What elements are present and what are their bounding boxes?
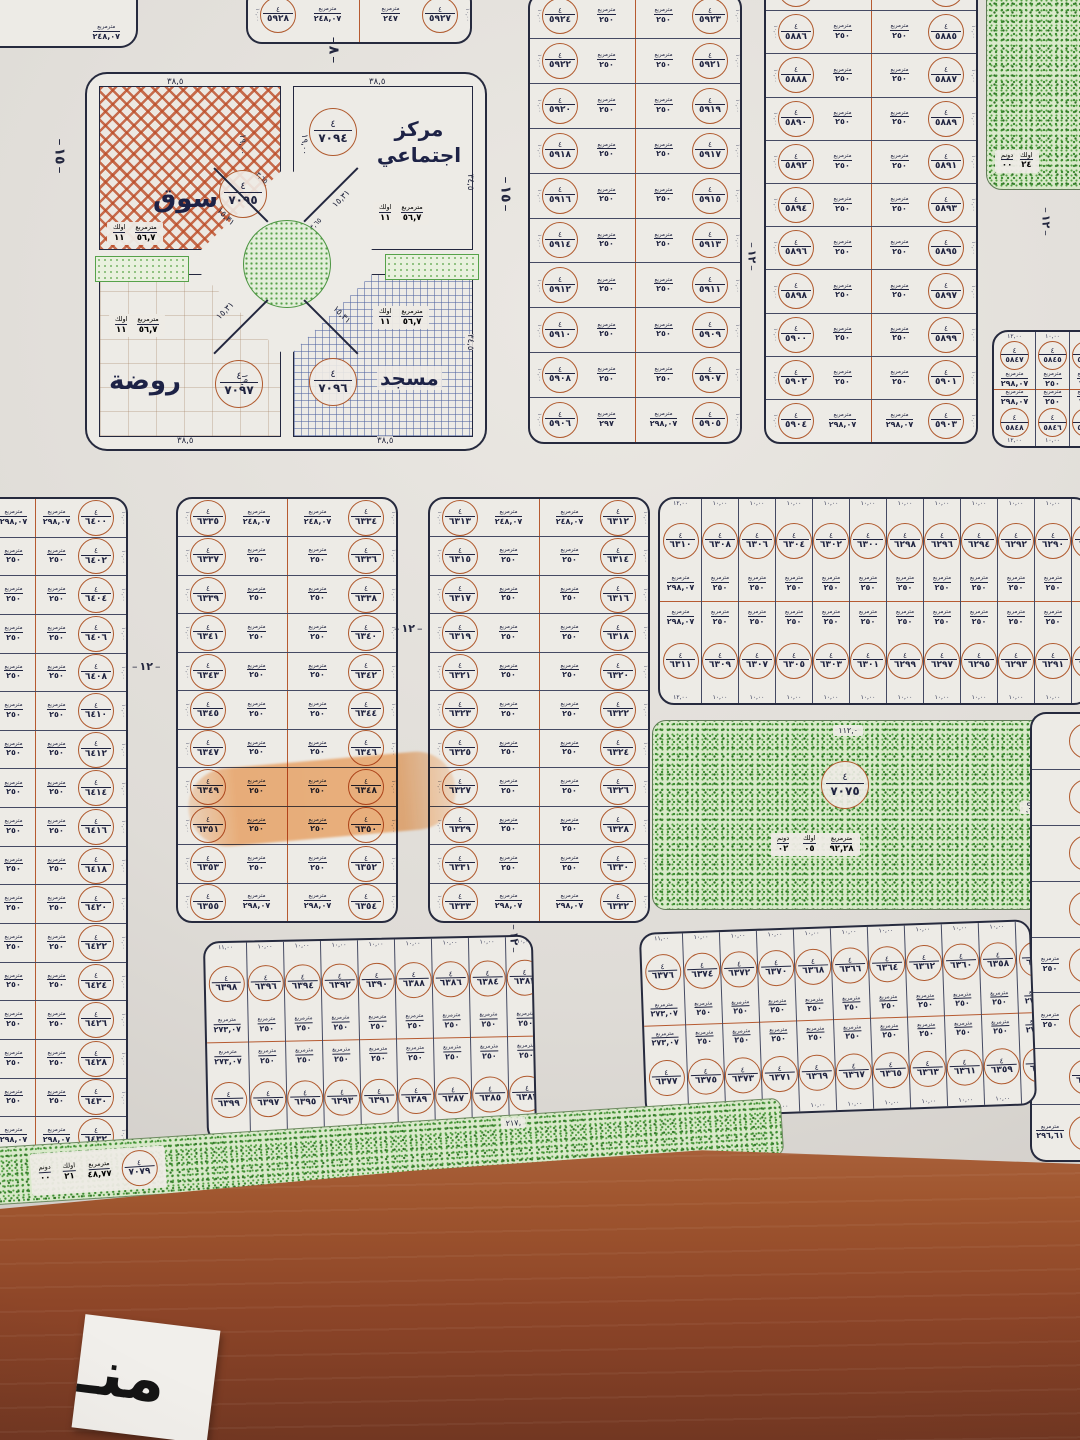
width-label: ١٠,٠٠ [847,1101,862,1108]
area-stamp: مترمربع٢٥٠ [4,857,22,875]
area-stamp: مترمربع٢٥٠ [916,992,935,1010]
plot-number: ٦٢٩٢ [1001,539,1031,550]
plot-number: ٦٣٧٣ [728,1073,758,1085]
unit-word: مترمربع [4,548,22,556]
block-number: ٤ [962,1058,966,1066]
plot-circle-٦٤١٠: ٤٦٤١٠ [78,693,114,729]
unit-word: مترمربع [47,780,65,788]
area-stamp: مترمربع٢٥٠ [308,701,326,719]
area-stamp: مترمربع٢٥٠ [405,1013,423,1031]
area-value: ٢٥٠ [890,377,908,387]
block-number: ٤ [829,652,833,660]
area-value: ٢٥٠ [1007,617,1025,627]
block-east-clipped: ٤ ٤ ٤ ٤ مترمربع٢٥٠٤ مترمربع٢٥٠٤ ٤٦٢٧٧متر… [1030,712,1080,1162]
unit-word: مترمربع [890,369,908,377]
area-stamp: مترمربع٢٥٠ [369,1046,387,1064]
plot-number: ٦٢٩١ [1038,659,1068,670]
plot-circle-٦٢٧٧: ٤٦٢٧٧ [1069,1059,1080,1095]
area-value: ٢٥٠ [47,1096,65,1106]
block-number: ٤ [338,972,342,980]
area-value: ٢٤٨,٠٧ [93,32,120,42]
unit-word: مترمربع [890,23,908,31]
unit-stamp-column: اولك٢١ [62,1162,76,1182]
plot-circle-٦٤٠٨: ٤٦٤٠٨ [78,654,114,690]
plot-circle-٦٣٤٢: ٤٦٣٤٢ [348,654,384,690]
plot-row: ١٠,٠٠٤٦٣١٩مترمربع٢٥٠مترمربع٢٥٠٤٦٣١٨١٠,٠٠ [430,613,648,651]
plot-circle-٥٩٠٣: ٤٥٩٠٣ [928,403,964,439]
area-value: ٢٩٨,٠٧ [495,901,522,911]
unit-word: مترمربع [499,701,517,709]
unit-word: مترمربع [833,153,851,161]
block-number: ٤ [94,779,98,787]
plot-row: ١٠,٠٠٤٦٣٥٣مترمربع٢٥٠مترمربع٢٥٠٤٦٣٥٢١٠,٠٠ [178,844,396,882]
edge-dim: ١٠,٠٠ [384,742,396,756]
area-stamp: مترمربع٢٥٠ [890,110,908,128]
block-5883-5904: ١٠,٠٠٤٥٨٨٤مترمربع٢٤٨,٠٧مترمربع٢٤٨,٠٧٤٥٨٨… [764,0,978,444]
area-value: ٢٥٠ [499,593,517,603]
plot-number: ٥٨٨٦ [781,31,811,42]
block-number: ٤ [925,1060,929,1068]
plot-number: ٦٣٨٣ [512,1092,537,1104]
area-stamp: مترمربع٢٥٠ [597,277,615,295]
plot-number: ٦٤٠٢ [81,555,111,566]
plot-row: ١٠,٠٠٤٦٣٢٩مترمربع٢٥٠مترمربع٢٥٠٤٦٣٢٨١٠,٠٠ [430,806,648,844]
width-label: ١٠,٠٠ [713,501,728,507]
plot-number: ٥٩٢٣ [695,14,725,25]
unit-word: مترمربع [308,740,326,748]
area-value: ٢٥٠ [308,747,326,757]
plot-number: ٦٣٩٠ [362,979,392,991]
plot-number: ٦٢٩٧ [927,659,957,670]
unit-word: مترمربع [47,586,65,594]
area-stamp: مترمربع٢٥٠ [890,196,908,214]
plot-number: ٦٣٢٦ [603,785,633,796]
block-number: ٤ [718,532,722,540]
width-label: ١٠,٠٠ [958,1097,973,1104]
block-number: ٤ [704,1068,708,1076]
south-strip-label: مترمربع٤٨,٧٧اولك٢١دونم٠٠ ٤ ٧٠٧٩ [30,1146,167,1196]
dim-label: ٣٤,٥ [465,334,475,350]
edge-dim: ١٠,٠٠ [430,588,442,602]
block-number: ٤ [364,547,368,555]
plot-circle-٦٣٧٧: ٤٦٣٧٧ [648,1060,685,1097]
edge-dim: ١٠,٠٠ [766,25,778,39]
plot-number: ٦٤٠٦ [81,632,111,643]
plot-number: ٦٢٨٩ [1075,659,1080,670]
area-stamp: مترمربع٢٤٨,٠٧ [495,509,522,527]
plot-number: ٥٩١١ [695,284,725,295]
plot-circle-٦٣٥٩: ٤٦٣٥٩ [983,1048,1020,1085]
block-number: ٤ [708,366,712,374]
unit-word: مترمربع [667,575,694,583]
area-stamp: مترمربع٢٥٠ [843,1024,862,1042]
block-number: ٤ [1014,652,1018,660]
unit-value: ٠٢ [778,844,788,855]
area-stamp: مترمربع٢٥٠ [748,609,766,627]
plot-col: ١٠,٠٠٤٦٣٨٨مترمربع٢٥٠مترمربع٢٥٠٤٦٣٨٩١٠,٠٠ [394,939,435,1138]
unit-word: مترمربع [833,67,851,75]
unit-word: اولك [379,308,391,317]
block-number: ٤ [1050,414,1054,422]
block-number: ٤ [458,701,462,709]
plot-number: ٥٩٠٢ [781,376,811,387]
area-value: ٢٩٨,٠٧ [43,517,70,527]
area-stamp: مترمربع٢٥٠ [806,1025,825,1043]
unit-word: مترمربع [47,1050,65,1058]
plot-circle-٦٢٩٦: ٤٦٢٩٦ [924,523,960,559]
edge-dim: ١٠,٠٠ [430,703,442,717]
area-stamp: مترمربع٢٥٠ [443,1045,461,1063]
area-stamp: مترمربع٢٥٠ [833,326,851,344]
area-value: ٢٥٠ [560,555,578,565]
plot-circle-٦٣٦٤: ٤٦٣٦٤ [868,945,905,982]
unit-word: مترمربع [748,575,766,583]
edge-dim: ١٠,٠٠ [728,324,740,338]
plot-number: ٥٨٩٣ [931,203,961,214]
plot-circle-٦٣٠٦: ٤٦٣٠٦ [739,523,775,559]
width-label: ١٢,٠٠ [1007,438,1022,444]
area-value: ٢٥٠ [1044,583,1062,593]
plot-col: ١١,٠٠٤٦٣٩٨مترمربع٢٧٣,٠٧مترمربع٢٧٣,٠٧٤٦٣٩… [205,943,250,1142]
plot-row: ١٠,٠٠٤٦٤٠٧مترمربع٢٥٠مترمربع٢٥٠٤٦٤٠٦١٠,٠٠ [0,614,126,653]
area-stamp: مترمربع٢٩٨,٠٧ [1001,371,1028,389]
block-number: ٤ [944,239,948,247]
width-label: ١١,٠٠ [218,945,233,951]
area-stamp: مترمربع٢٥٠ [890,369,908,387]
plot-number: ٦٢٩٥ [964,659,994,670]
width-label: ١٠,٠٠ [295,943,310,949]
area-value: ٢٥٠ [953,998,971,1009]
area-stamp: مترمربع٢٩٨,٠٧ [495,893,522,911]
plot-circle-clipped: ٤ [1069,1115,1080,1151]
block-number: ٤ [94,624,98,632]
area-value: ٢٥٠ [247,709,265,719]
unit-word: مترمربع [304,509,331,517]
unit-word: مترمربع [654,277,672,285]
area-stamp: مترمربع٢٩٨,٠٧ [829,412,856,430]
area-stamp: مترمربع٢٥٠ [954,1020,973,1038]
edge-dim: ١٠,٠٠ [178,665,190,679]
plot-circle-٦٣٥١: ٤٦٣٥١ [190,807,226,843]
area-value: ٢٥٠ [499,747,517,757]
unit-word: مترمربع [890,153,908,161]
block-number: ٤ [458,585,462,593]
area-stamp: مترمربع٢٥٠ [499,624,517,642]
unit-word: مترمربع [308,701,326,709]
area-value: ٢٥٠ [890,247,908,257]
dim-label: ١٩,٠٠ [299,134,309,155]
area-value: ٢٥٠ [47,594,65,604]
plot-row: ١٠,٠٠٤٥٩٢٢مترمربع٢٥٠مترمربع٢٥٠٤٥٩٢١١٠,٠٠ [530,38,740,83]
dim-label: ١٩,٠٠ [237,134,247,155]
plot-circle-٦٣١٧: ٤٦٣١٧ [442,577,478,613]
unit-word: مترمربع [47,625,65,633]
plot-number: ٥٩١٥ [695,194,725,205]
area-value: ٢٥٠ [833,204,851,214]
area-value: ٢٥٠ [1041,964,1059,974]
block-6356-6377: ١١,٠٠٤٦٣٧٦مترمربع٢٧٣,٠٧مترمربع٢٧٣,٠٧٤٦٣٧… [639,919,1037,1119]
plot-circle-٦٣٩٥: ٤٦٣٩٥ [287,1080,324,1117]
edge-dim: ١٠,٠٠ [964,25,976,39]
area-stamp: مترمربع٢٧٣,٠٧ [650,1001,678,1020]
area-value: ٢٥٠ [560,632,578,642]
plot-number: ٥٩٠٨ [545,373,575,384]
plot-circle-٥٨٩٢: ٤٥٨٩٢ [778,144,814,180]
unit-word: مترمربع [4,780,22,788]
area-value: ٢٩٨,٠٧ [304,901,331,911]
block-number: ٤ [616,739,620,747]
plot-circle-٥٩١٠: ٤٥٩١٠ [542,312,578,348]
edge-dim: ١٠,٠٠ [964,112,976,126]
block-number: ٤ [708,52,712,60]
unit-stamp-column: دونم٠٠ [38,1164,51,1184]
plot-circle-٥٨٤٣: ٤٥٨٤٣ [1072,341,1080,370]
area-stamp: مترمربع٢٧٣,٠٧ [213,1017,241,1035]
block-number: ٤ [206,739,210,747]
edge-dim: ١٠,٠٠ [178,588,190,602]
width-label: ١٠,٠٠ [841,929,856,936]
plot-number: ٥٩٠٩ [695,329,725,340]
plot-circle-٦٣٤٩: ٤٦٣٤٩ [190,769,226,805]
block-number: ٤ [977,532,981,540]
edge-dim: ١٠,٠٠ [384,549,396,563]
plot-col: ١٠,٠٠٤٦٣٧٤مترمربع٢٥٠مترمربع٢٥٠٤٦٣٧٥١٠,٠٠ [682,932,725,1115]
plot-col: ١٠,٠٠٤٦٣٩٢مترمربع٢٥٠مترمربع٢٥٠٤٦٣٩٣١٠,٠٠ [320,940,361,1139]
plot-col: ١١,٠٠٤٦٣٧٦مترمربع٢٧٣,٠٧مترمربع٢٧٣,٠٧٤٦٣٧… [641,933,688,1116]
plot-circle-٦٣٧٦: ٤٦٣٧٦ [644,953,681,990]
area-stamp: مترمربع٢٥٠ [748,575,766,593]
block-6286-6311: ١٢,٠٠٤٦٣١٠مترمربع٢٩٨,٠٧مترمربع٢٩٨,٠٧٤٦٣١… [658,497,1080,705]
edge-dim: ١٠,٠٠ [114,704,126,718]
plot-number: ٦٤١٢ [81,748,111,759]
edge-dim: ١٠,٠٠ [766,69,778,83]
block-number: ٤ [708,7,712,15]
area-value: ٢٥٠ [308,863,326,873]
block-number: ٤ [94,586,98,594]
area-stamp: مترمربع٢٥٠ [258,1048,276,1066]
block-number: ٤ [794,282,798,290]
unit-word: مترمربع [499,586,517,594]
plot-number: ٦٣١٩ [445,631,475,642]
plot-row: ١٠,٠٠٤٥٩٢٨مترمربع٢٤٨,٠٧مترمربع٢٤٧٤٥٩٢٧١٠… [248,0,470,42]
plot-row: ١٠,٠٠٤٦٣٤١مترمربع٢٥٠مترمربع٢٥٠٤٦٣٤٠١٠,٠٠ [178,613,396,651]
dim-label: ١٩,٠٠ [239,374,249,395]
area-stamp: مترمربع٢٥٠ [247,586,265,604]
plot-circle-7075: ٤ ٧٠٧٥ [821,761,869,809]
edge-dim: ١٠,٠٠ [178,626,190,640]
area-stamp: مترمربع٢٥٠ [654,277,672,295]
area-stamp: مترمربع٢٥٠ [47,1050,65,1068]
plot-circle-٦٣٧٢: ٤٦٣٧٢ [721,951,758,988]
plot-col: ١٠,٠٠٤٦٣٠٨مترمربع٢٥٠مترمربع٢٥٠٤٦٣٠٩١٠,٠٠ [701,499,738,703]
block-5905-5924: ١٠,٠٠٤٥٩٢٤مترمربع٢٥٠مترمربع٢٥٠٤٥٩٢٣١٠,٠٠… [528,0,742,444]
block-number: ٤ [364,778,368,786]
edge-dim: ١٠,٠٠ [114,743,126,757]
area-stamp: مترمربع٢٥٠ [47,1089,65,1107]
block-number: ٤ [364,816,368,824]
unit-stamp: مترمربع٥٦,٧اولك١١ [373,306,429,329]
block-number: ٤ [94,547,98,555]
block-number: ٤ [458,893,462,901]
plot-row: ١٠,٠٠٤٦٣٤٩مترمربع٢٥٠مترمربع٢٥٠٤٦٣٤٨١٠,٠٠ [178,767,396,805]
unit-word: دونم [1001,152,1013,161]
edge-dim: ١٠,٠٠ [178,742,190,756]
area-stamp: مترمربع٢٥٠ [247,740,265,758]
unit-word: مترمربع [308,624,326,632]
block-number: ٤ [523,968,527,976]
area-value: ٢٥٠ [694,1007,712,1018]
area-stamp: مترمربع٢٥٠ [785,609,803,627]
unit-word: مترمربع [47,857,65,865]
plot-number: ٦٢٧٧ [1072,1075,1080,1086]
plot-circle-٦٣٤٧: ٤٦٣٤٧ [190,730,226,766]
plot-number: ٦٣٢٤ [603,747,633,758]
plot-circle-٥٨٨٤: ٤٥٨٨٤ [778,0,814,7]
plot-row: ١٠,٠٠٤٥٩٠٢مترمربع٢٥٠مترمربع٢٥٠٤٥٩٠١١٠,٠٠ [766,356,976,399]
block-6378-6399: ١١,٠٠٤٦٣٩٨مترمربع٢٧٣,٠٧مترمربع٢٧٣,٠٧٤٦٣٩… [203,935,537,1144]
block-number: ٤ [364,508,368,516]
area-stamp: مترمربع٢٥٠ [917,1021,936,1039]
plot-circle-٥٨٩٠: ٤٥٨٩٠ [778,101,814,137]
block-number: ٤ [364,739,368,747]
plot-row: ١٠,٠٠٤٦٤٠١مترمربع٢٩٨,٠٧مترمربع٢٩٨,٠٧٤٦٤٠… [0,499,126,537]
unit-word: مترمربع [556,509,583,517]
plot-circle-٦٣٣٤: ٤٦٣٣٤ [348,500,384,536]
plot-number: ٥٩١٦ [545,194,575,205]
plot-circle-clipped: ٤ [1069,723,1080,759]
area-stamp: مترمربع٢٥٠ [308,817,326,835]
unit-word: مترمربع [43,1127,70,1135]
block-5843-5848: ١٢,٠٠٤٥٨٤٧مترمربع٢٩٨,٠٧مترمربع٢٩٨,٠٧٤٥٨٤… [992,330,1080,448]
plot-number: ٦٣٢٨ [603,824,633,835]
block-number: ٤ [558,366,562,374]
block-number: ٤ [94,1050,98,1058]
block-number: ٤ [678,652,682,660]
plot-circle-٥٩١٥: ٤٥٩١٥ [692,178,728,214]
area-value: ٢٥٠ [805,1004,823,1015]
edge-dim: ١٠,٠٠ [636,703,648,717]
unit-word: مترمربع [499,624,517,632]
area-stamp: مترمربع٢٥٠ [4,973,22,991]
plot-circle-٦٣٨٧: ٤٦٣٨٧ [435,1077,472,1114]
area-stamp: مترمربع٢٥٠ [4,548,22,566]
plot-circle-٥٩٠١: ٤٥٩٠١ [928,360,964,396]
unit-word: مترمربع [4,934,22,942]
area-value: ٢٥٠ [859,617,877,627]
edge-dim: ١٠,٠٠ [530,54,542,68]
plot-circle-٥٩١٣: ٤٥٩١٣ [692,222,728,258]
area-stamp: مترمربع٢٥٠ [499,586,517,604]
unit-word: مترمربع [47,741,65,749]
unit-word: مترمربع [1043,371,1061,379]
unit-value: ١١ [380,213,390,224]
unit-word: مترمربع [859,609,877,617]
plot-row: ١٠,٠٠٤٦٤١٩مترمربع٢٥٠مترمربع٢٥٠٤٦٤١٨١٠,٠٠ [0,846,126,885]
area-value: ٢٥٠ [833,74,851,84]
block-number: ٤ [525,1084,529,1092]
plot-row: ١٠,٠٠٤٥٨٨٦مترمربع٢٥٠مترمربع٢٥٠٤٥٨٨٥١٠,٠٠ [766,10,976,53]
plot-circle-٦٢٩٥: ٤٦٢٩٥ [961,643,997,679]
area-stamp: مترمربع٢٧٣,٠٧ [651,1030,679,1049]
area-value: ٢٥٠ [4,980,22,990]
plot-number: ٦٣٦٨ [798,964,828,976]
unit-stamp-column: مترمربع٤٨,٧٧ [87,1160,112,1181]
unit-word: مترمربع [560,624,578,632]
area-value: ٢٥٠ [308,786,326,796]
block-number: ٤ [414,1087,418,1095]
area-stamp: مترمربع٢٥٠ [247,663,265,681]
plot-number: ٦٢٨٨ [1075,539,1080,550]
plot-number: ٦٣٩٢ [325,980,355,992]
block-number: ٤ [852,1062,856,1070]
unit-word: مترمربع [970,609,988,617]
plot-col: ١٠,٠٠٤٦٢٩٨مترمربع٢٥٠مترمربع٢٥٠٤٦٢٩٩١٠,٠٠ [886,499,923,703]
plot-number: ٦٣١٣ [445,516,475,527]
area-value: ٢٥٠ [896,583,914,593]
area-stamp: مترمربع٢٥٠ [654,7,672,25]
area-stamp: مترمربع٢٥٠ [406,1045,424,1063]
block-number: ٤ [94,972,98,980]
unit-word: مترمربع [833,283,851,291]
area-stamp: مترمربع٢٥٠ [990,990,1009,1008]
plot-circle-٦٢٩٣: ٤٦٢٩٣ [998,643,1034,679]
area-value: ٢٥٠ [654,284,672,294]
unit-word: مترمربع [597,142,615,150]
plot-circle-٦٣٤٠: ٤٦٣٤٠ [348,615,384,651]
area-stamp: مترمربع٢٥٠ [890,67,908,85]
plot-circle-٦٤٢٨: ٤٦٤٢٨ [78,1041,114,1077]
plot-circle-٦٣٨٩: ٤٦٣٨٩ [398,1078,435,1115]
unit-value: ٢١ [64,1171,75,1182]
edge-dim: ١٠,٠٠ [248,8,260,22]
edge-dim: ١٠,٠٠ [636,742,648,756]
unit-word: مترمربع [597,187,615,195]
area-value: ٢٥٠ [4,1058,22,1068]
edge-dim: ١٠,٠٠ [766,155,778,169]
area-stamp: مترمربع٢٥٠ [1007,609,1025,627]
plot-row: ١٠,٠٠٤٦٤٢٥مترمربع٢٥٠مترمربع٢٥٠٤٦٤٢٤١٠,٠٠ [0,962,126,1001]
area-stamp: مترمربع٢٥٠ [833,283,851,301]
width-label: ١٠,٠٠ [972,695,987,701]
plot-number: ٦٣٨٢ [510,976,537,988]
edge-dim: ١٠,٠٠ [964,241,976,255]
plot-number: ٦٣٩٤ [288,980,318,992]
unit-word: مترمربع [247,663,265,671]
plot-circle-٦٣٢٠: ٤٦٣٢٠ [600,654,636,690]
area-stamp: مترمربع٢٥٠ [308,663,326,681]
width-label: ١٠,٠٠ [1009,501,1024,507]
area-stamp: مترمربع٢٥٠ [4,818,22,836]
area-value: ٢٥٠ [47,671,65,681]
area-value: ٢٥٠ [880,1030,898,1041]
plot-number: ٥٨٤٥ [1039,354,1065,364]
unit-word: اولك [115,316,127,325]
plot-col: ١٠,٠٠٤٦٢٨٨مترمربع٢٥٠مترمربع٢٥٠٤٦٢٨٩١٠,٠٠ [1071,499,1080,703]
block-number: ٤ [558,97,562,105]
unit-word: مترمربع [137,316,158,325]
area-value: ٢٥٠ [654,149,672,159]
unit-word: مترمربع [47,1011,65,1019]
width-label: ١٠,٠٠ [369,942,384,948]
area-value: ٢٩٨,٠٧ [829,420,856,430]
unit-word: اولك [1020,152,1032,161]
area-value: ٢٥٠ [696,1037,714,1048]
plot-col: ١٠,٠٠٤٦٣٧٢مترمربع٢٥٠مترمربع٢٥٠٤٦٣٧٣١٠,٠٠ [719,931,762,1114]
plot-circle-٦٣٣٢: ٤٦٣٣٢ [600,884,636,920]
edge-dim: ١٠,٠٠ [766,414,778,428]
block-number: ٤ [616,547,620,555]
plot-number: ٦٣٤١ [193,631,223,642]
